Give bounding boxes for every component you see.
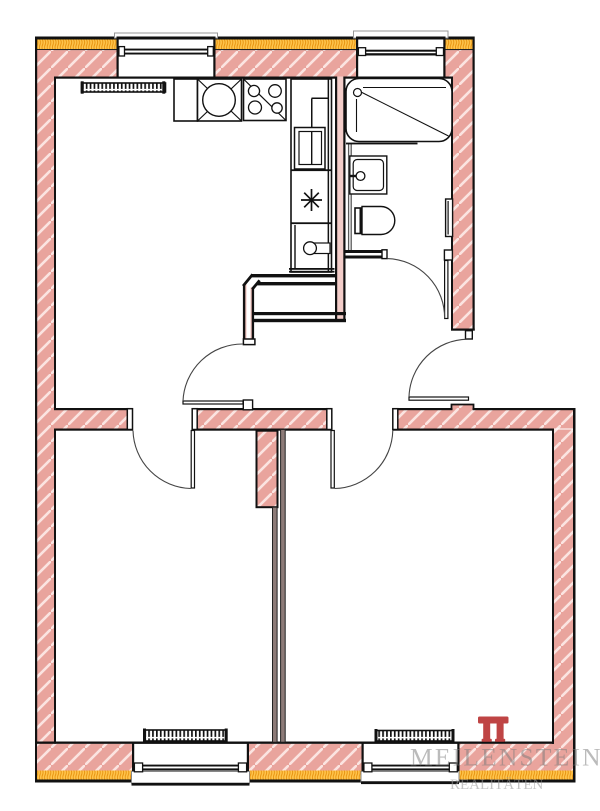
svg-text:REALITÄTEN: REALITÄTEN [450, 776, 543, 793]
svg-text:MEILENSTEIN: MEILENSTEIN [410, 743, 600, 772]
